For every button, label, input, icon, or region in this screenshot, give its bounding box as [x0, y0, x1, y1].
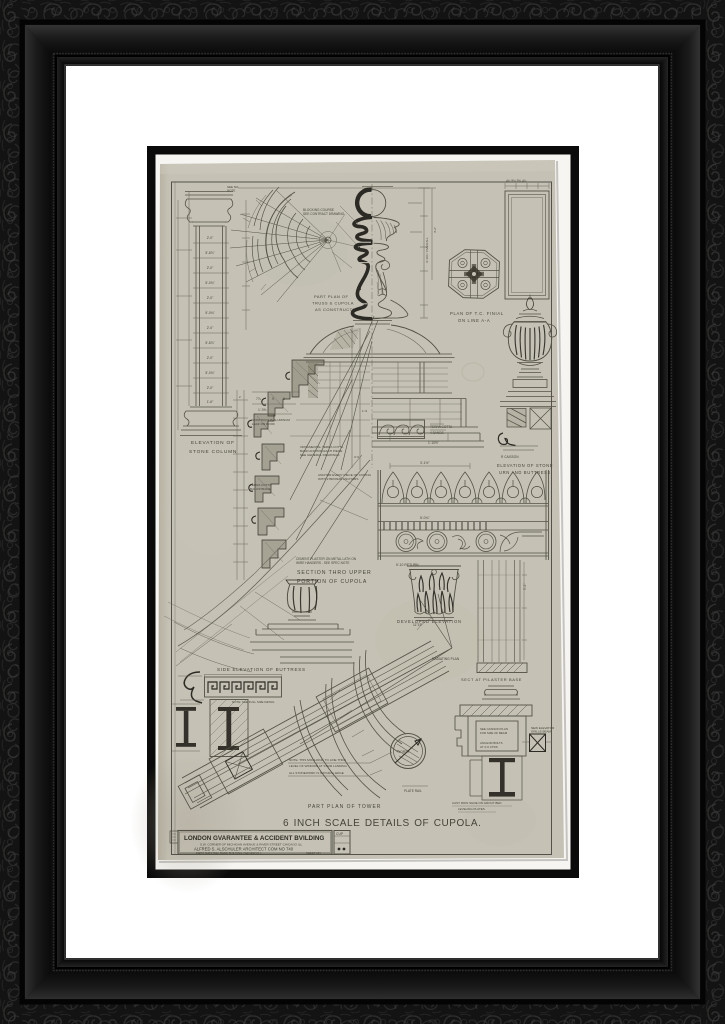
svg-text:5'-0¾": 5'-0¾" [205, 281, 215, 285]
svg-text:SEE GENERAL DRAWINGS: SEE GENERAL DRAWINGS [300, 453, 339, 457]
svg-text:4¼ 9¾ 9¾ 4¼: 4¼ 9¾ 9¾ 4¼ [506, 179, 527, 183]
svg-text:SIDE ELEVATION OF BUTTRESS: SIDE ELEVATION OF BUTTRESS [217, 667, 306, 672]
svg-text:R CAISSON: R CAISSON [501, 455, 519, 459]
svg-text:NOTE: SEE FULL SIZE DETAIL: NOTE: SEE FULL SIZE DETAIL [232, 700, 275, 704]
svg-text:RADIATING PLAN: RADIATING PLAN [432, 657, 460, 661]
svg-text:FIRST NATIONAL BANK BUILDING: FIRST NATIONAL BANK BUILDING CHICAGO ILL [196, 851, 262, 855]
svg-text:5'-0¾": 5'-0¾" [205, 311, 215, 315]
svg-text:STONE COLUMN: STONE COLUMN [189, 449, 237, 455]
svg-text:PLATE RAIL: PLATE RAIL [404, 789, 422, 793]
svg-text:1'-10⅝": 1'-10⅝" [428, 441, 439, 445]
svg-text:ALL STONEWORK IS NATURAL EDGE: ALL STONEWORK IS NATURAL EDGE [289, 771, 344, 775]
svg-text:2'-0": 2'-0" [207, 386, 214, 390]
svg-text:DEVELOPED ELEVATION: DEVELOPED ELEVATION [397, 619, 462, 624]
svg-text:WITH 2 BRONZE ANCHORS: WITH 2 BRONZE ANCHORS [318, 477, 358, 481]
svg-text:CAST IRON SHOE ON GROUT BED: CAST IRON SHOE ON GROUT BED [452, 801, 502, 805]
svg-text:5'-0¾": 5'-0¾" [205, 371, 215, 375]
svg-text:SECT AT PILASTER BASE: SECT AT PILASTER BASE [461, 677, 522, 682]
svg-text:5'-0¾": 5'-0¾" [420, 516, 430, 520]
svg-text:PLAN OF T.C. FINIAL: PLAN OF T.C. FINIAL [450, 311, 504, 316]
svg-text:5'-8⅞": 5'-8⅞" [205, 341, 215, 345]
svg-text:BALUSTRADE: BALUSTRADE [250, 487, 271, 491]
svg-text:2'-0": 2'-0" [207, 266, 214, 270]
svg-text:1'-6": 1'-6" [207, 400, 214, 404]
svg-text:TERRA COTTA: TERRA COTTA [430, 425, 453, 429]
svg-text:URN AND BUTTRESS: URN AND BUTTRESS [499, 470, 551, 475]
svg-text:SHEET NO: SHEET NO [306, 851, 321, 855]
svg-text:5'-8⅞": 5'-8⅞" [205, 251, 215, 255]
svg-text:2'-0": 2'-0" [207, 356, 214, 360]
svg-text:AT 3'-0 CTRS: AT 3'-0 CTRS [480, 745, 498, 749]
svg-text:LEVEL OF WINDOW AT STAIR LANDI: LEVEL OF WINDOW AT STAIR LANDING [289, 764, 347, 768]
svg-text:GRILLE BEAM: GRILLE BEAM [531, 730, 552, 734]
svg-text:FOR SIZE OF BEAM: FOR SIZE OF BEAM [480, 731, 508, 735]
svg-text:ELEVATION OF: ELEVATION OF [191, 440, 235, 446]
svg-text:4 BANDS: 4 BANDS [430, 431, 444, 435]
svg-text:ELEVATION OF STONE: ELEVATION OF STONE [497, 463, 553, 468]
svg-text:6 INCH SCALE DETAILS OF CUPOLA: 6 INCH SCALE DETAILS OF CUPOLA. [283, 818, 481, 829]
svg-text:ON LINE A-A: ON LINE A-A [458, 318, 490, 323]
svg-text:SECTION THRO UPPER: SECTION THRO UPPER [297, 570, 372, 576]
svg-text:2'-0": 2'-0" [207, 296, 214, 300]
svg-text:LEVELING PLATES: LEVELING PLATES [458, 807, 485, 811]
svg-text:PART PLAN OF TOWER: PART PLAN OF TOWER [308, 804, 381, 810]
svg-text:2'-0": 2'-0" [207, 326, 214, 330]
svg-text:NORTH: NORTH [398, 750, 410, 754]
svg-text:7⅞: 7⅞ [256, 397, 261, 401]
svg-text:11°15': 11°15' [413, 623, 422, 627]
svg-text:NOTE: THIS MOULDING TO LINE TH: NOTE: THIS MOULDING TO LINE THRU [289, 758, 346, 762]
svg-text:CUP: CUP [336, 832, 344, 836]
svg-text:WIRE HANGERS - SEE SPEC NOTE: WIRE HANGERS - SEE SPEC NOTE [296, 561, 350, 565]
svg-text:4'-2": 4'-2" [433, 227, 437, 233]
svg-text:SEE CONTRACT DRAWING: SEE CONTRACT DRAWING [303, 212, 345, 216]
svg-text:TRUSS & CUPOLA: TRUSS & CUPOLA [312, 301, 354, 306]
svg-text:NOTE: NOTE [227, 189, 235, 193]
svg-text:5'-2": 5'-2" [523, 584, 527, 590]
svg-text:LONDON GVARANTEE & ACCIDENT BV: LONDON GVARANTEE & ACCIDENT BVILDING [184, 835, 324, 842]
svg-text:PART PLAN OF: PART PLAN OF [314, 294, 349, 299]
svg-text:3'-0: 3'-0 [354, 455, 359, 459]
svg-text:LEAF ON ROOF: LEAF ON ROOF [252, 422, 275, 426]
svg-text:3: 3 [283, 397, 285, 401]
svg-text:9: 9 [272, 397, 274, 401]
svg-text:2'-0": 2'-0" [207, 236, 214, 240]
svg-text:3'-1½": 3'-1½" [420, 461, 430, 465]
svg-text:9'-10¾" OVER ALL: 9'-10¾" OVER ALL [425, 237, 429, 263]
svg-text:1'-3⅝: 1'-3⅝ [258, 408, 267, 412]
svg-text:1'-9: 1'-9 [362, 409, 367, 413]
